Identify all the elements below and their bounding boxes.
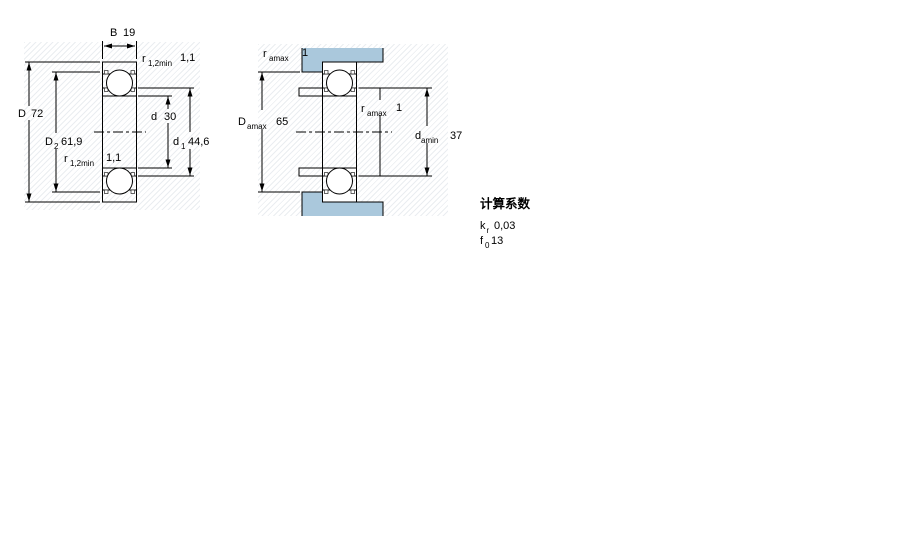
label-r-top-value: 1,1 — [180, 52, 195, 64]
label-da-value: 37 — [450, 130, 462, 142]
groove-notch — [325, 71, 329, 75]
factor-f0-sub: 0 — [485, 241, 490, 250]
label-D2-value: 61,9 — [61, 136, 82, 148]
calc-factors-title: 计算系数 — [480, 196, 531, 211]
arrowhead — [260, 73, 265, 81]
factor-kr: k — [480, 220, 486, 232]
label-B-value: 19 — [123, 27, 135, 39]
arrowhead — [188, 168, 193, 176]
groove-notch — [131, 71, 135, 75]
label-d1-sub: 1 — [181, 142, 186, 151]
dimension-Da-lines — [258, 72, 300, 192]
label-Da: D — [238, 116, 246, 128]
label-d-value: 30 — [164, 111, 176, 123]
arrowhead — [425, 168, 430, 176]
groove-notch — [351, 71, 355, 75]
arrowhead — [27, 194, 32, 202]
label-D2-sub: 2 — [54, 142, 59, 151]
label-r-bottom-value: 1,1 — [106, 152, 121, 164]
dimension-d-lines — [138, 96, 172, 168]
label-ra-mid-value: 1 — [396, 102, 402, 114]
label-ra-top: r — [263, 48, 267, 60]
dimension-D-lines — [25, 62, 100, 202]
bearing-technical-drawing: B 19 r 1,2min 1,1 D 72 D 2 61,9 d 30 d 1… — [0, 0, 900, 560]
groove-notch — [325, 190, 329, 194]
label-r-bottom: r — [64, 153, 68, 165]
ball-bottom — [327, 168, 353, 194]
groove-notch — [351, 190, 355, 194]
label-r-top-sub: 1,2min — [148, 59, 172, 68]
label-d1-value: 44,6 — [188, 136, 209, 148]
factor-f0-value: 13 — [491, 235, 503, 247]
arrowhead — [104, 44, 112, 49]
dimension-D2-lines — [52, 72, 100, 192]
label-Da-sub: amax — [247, 122, 267, 131]
label-ra-mid-sub: amax — [367, 109, 387, 118]
label-ra-mid: r — [361, 103, 365, 115]
dimension-d1-lines — [138, 88, 194, 176]
arrowhead — [127, 44, 135, 49]
label-B: B — [110, 27, 117, 39]
groove-notch — [105, 190, 109, 194]
factor-kr-value: 0,03 — [494, 220, 515, 232]
label-Da-value: 65 — [276, 116, 288, 128]
label-D-value: 72 — [31, 108, 43, 120]
arrowhead — [166, 160, 171, 168]
ball-bottom — [107, 168, 133, 194]
arrowhead — [54, 73, 59, 81]
factor-kr-sub: r — [487, 226, 490, 235]
label-ra-top-value: 1 — [302, 47, 308, 59]
label-d: d — [151, 111, 157, 123]
calculation-factors-block: 计算系数 k r 0,03 f 0 13 — [480, 196, 531, 250]
arrowhead — [188, 89, 193, 97]
label-da-sub: amin — [421, 136, 438, 145]
right-figure-abutment-section: r amax 1 D amax 65 r amax 1 d amin 37 — [238, 47, 462, 216]
arrowhead — [260, 184, 265, 192]
factor-f0: f — [480, 235, 484, 247]
ball-top — [327, 70, 353, 96]
label-ra-top-sub: amax — [269, 54, 289, 63]
label-d1: d — [173, 136, 179, 148]
arrowhead — [54, 184, 59, 192]
label-r-top: r — [142, 53, 146, 65]
groove-notch — [105, 71, 109, 75]
label-r-bottom-sub: 1,2min — [70, 159, 94, 168]
shaft-shoulder-top — [299, 88, 323, 96]
shaft-shoulder-bottom — [299, 168, 323, 176]
dimension-B-lines — [103, 41, 137, 59]
label-D2: D — [45, 136, 53, 148]
left-figure-bearing-section: B 19 r 1,2min 1,1 D 72 D 2 61,9 d 30 d 1… — [18, 27, 209, 202]
drawing-canvas: B 19 r 1,2min 1,1 D 72 D 2 61,9 d 30 d 1… — [0, 0, 900, 560]
arrowhead — [166, 97, 171, 105]
label-D: D — [18, 108, 26, 120]
groove-notch — [131, 190, 135, 194]
arrowhead — [27, 63, 32, 71]
ball-top — [107, 70, 133, 96]
arrowhead — [425, 89, 430, 97]
